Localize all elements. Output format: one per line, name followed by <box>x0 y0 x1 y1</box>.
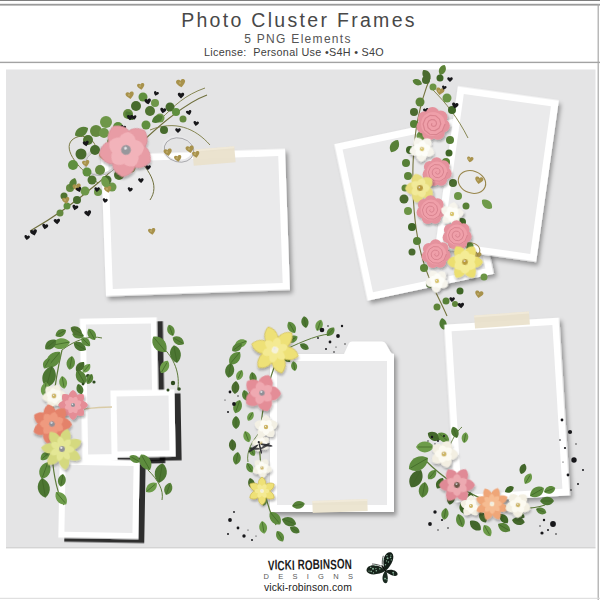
svg-text:5 PNG Elements: 5 PNG Elements <box>244 32 352 46</box>
svg-text:vicki-robinson.com: vicki-robinson.com <box>264 582 352 593</box>
svg-text:D E S I G N S: D E S I G N S <box>263 572 356 581</box>
svg-text:Photo Cluster Frames: Photo Cluster Frames <box>181 9 417 31</box>
svg-text:License: Personal Use •S4H •: License: Personal Use •S4H • S4O <box>204 46 384 58</box>
